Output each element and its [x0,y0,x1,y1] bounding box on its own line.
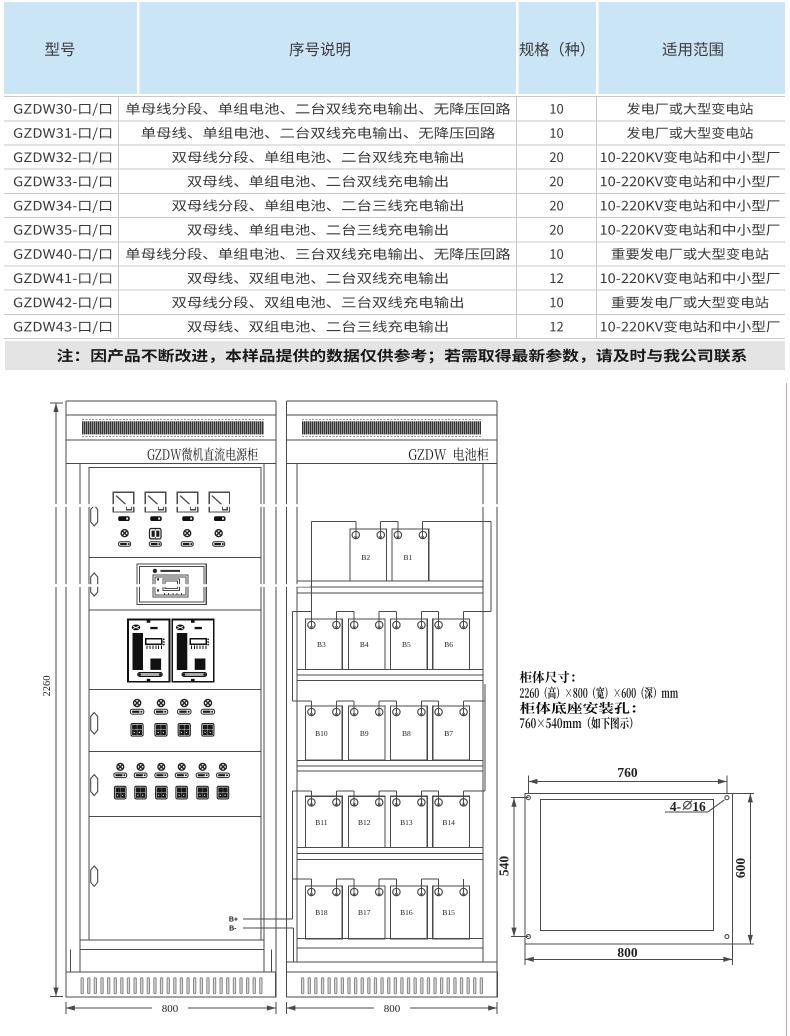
svg-text:B2: B2 [361,553,370,562]
svg-text:B5: B5 [402,640,411,649]
svg-text:B3: B3 [317,640,326,649]
svg-text:B11: B11 [315,818,327,827]
svg-text:540: 540 [497,856,512,877]
svg-text:760: 760 [617,765,638,780]
svg-text:800: 800 [162,1003,179,1015]
svg-text:2260: 2260 [42,676,53,697]
svg-text:B1: B1 [404,553,413,562]
svg-text:800: 800 [384,1003,401,1015]
svg-text:800: 800 [617,945,638,960]
svg-text:B10: B10 [315,729,328,738]
svg-text:B14: B14 [442,818,455,827]
svg-text:600: 600 [733,858,748,879]
svg-text:B12: B12 [358,818,371,827]
svg-text:B9: B9 [360,729,369,738]
svg-text:B7: B7 [444,729,453,738]
svg-text:B16: B16 [400,908,413,917]
svg-text:B8: B8 [402,729,411,738]
svg-text:B17: B17 [358,908,371,917]
svg-text:B18: B18 [315,908,328,917]
svg-text:B-: B- [229,926,237,933]
svg-text:B4: B4 [360,640,369,649]
svg-text:B+: B+ [229,916,238,923]
svg-text:B15: B15 [442,908,455,917]
svg-text:B6: B6 [444,640,453,649]
svg-text:B13: B13 [400,818,413,827]
